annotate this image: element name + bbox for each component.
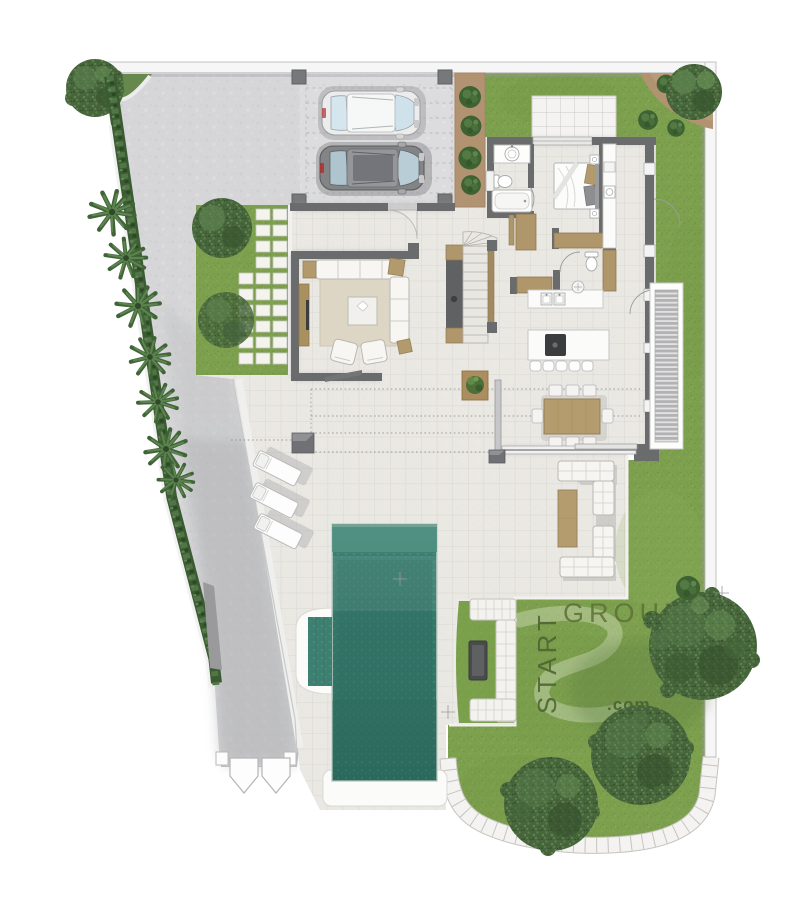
svg-text:START: START [532,611,562,714]
